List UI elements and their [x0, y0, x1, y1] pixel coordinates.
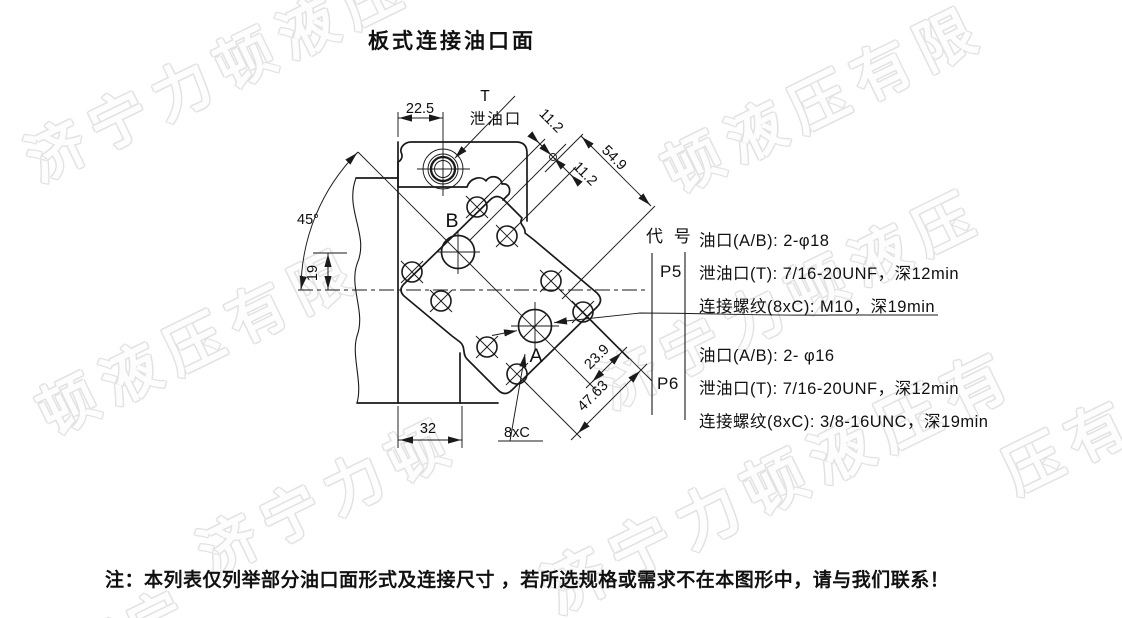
spec-p5-bolt-thread: 连接螺纹(8xC): M10，深19min: [699, 293, 935, 317]
spec-p6-drain-thread: 泄油口(T): 7/16-20UNF，深12min: [699, 375, 959, 399]
dim-diagonal: 54.9: [598, 143, 629, 174]
spec-p5-port-size: 油口(A/B): 2-φ18: [699, 227, 829, 251]
footnote: 注：本列表仅列举部分油口面形式及连接尺寸 ，若所选规格或需求不在本图形中，请与我…: [105, 565, 949, 592]
valve-body-outline: [353, 142, 601, 403]
dim-offset-b: 11.2: [570, 159, 601, 190]
spec-code-p6: P6: [657, 374, 679, 394]
spec-p6-port-size: 油口(A/B): 2- φ16: [699, 342, 835, 366]
spec-p6-bolt-thread: 连接螺纹(8xC): 3/8-16UNC，深19min: [699, 408, 988, 432]
t-port-label: T: [480, 88, 490, 105]
spec-p5-drain-thread: 泄油口(T): 7/16-20UNF，深12min: [699, 260, 959, 284]
page-title: 板式连接油口面: [368, 25, 536, 55]
dim-pitch-large: 47.63: [575, 378, 612, 415]
drawing-sheet: 济宁力顿液压 顿液压有限 顿液压有限 济宁力顿液压 压有限 济宁力顿 济宁力顿液…: [0, 0, 1122, 618]
dim-bottom-width: 32: [420, 421, 436, 437]
technical-drawing: 22.5 19 45° 32 11.2 11.2 54.9 23.9 47.63…: [0, 0, 1122, 618]
dim-top-width: 22.5: [406, 101, 434, 117]
spec-table-header: 代 号: [646, 222, 694, 247]
spec-code-p5: P5: [660, 262, 682, 282]
port-a-label: A: [529, 345, 542, 367]
bolt-holes-label: 8xC: [504, 425, 530, 441]
port-b-label: B: [445, 210, 458, 232]
dim-left-height: 19: [305, 265, 321, 281]
dim-angle: 45°: [297, 212, 319, 228]
dim-offset-a: 11.2: [536, 106, 567, 137]
dim-pitch-small: 23.9: [582, 342, 613, 373]
break-line: [353, 178, 361, 403]
port-a: [511, 302, 559, 350]
t-port-name-label: 泄油口: [470, 110, 523, 128]
t-port-block: [398, 142, 527, 221]
